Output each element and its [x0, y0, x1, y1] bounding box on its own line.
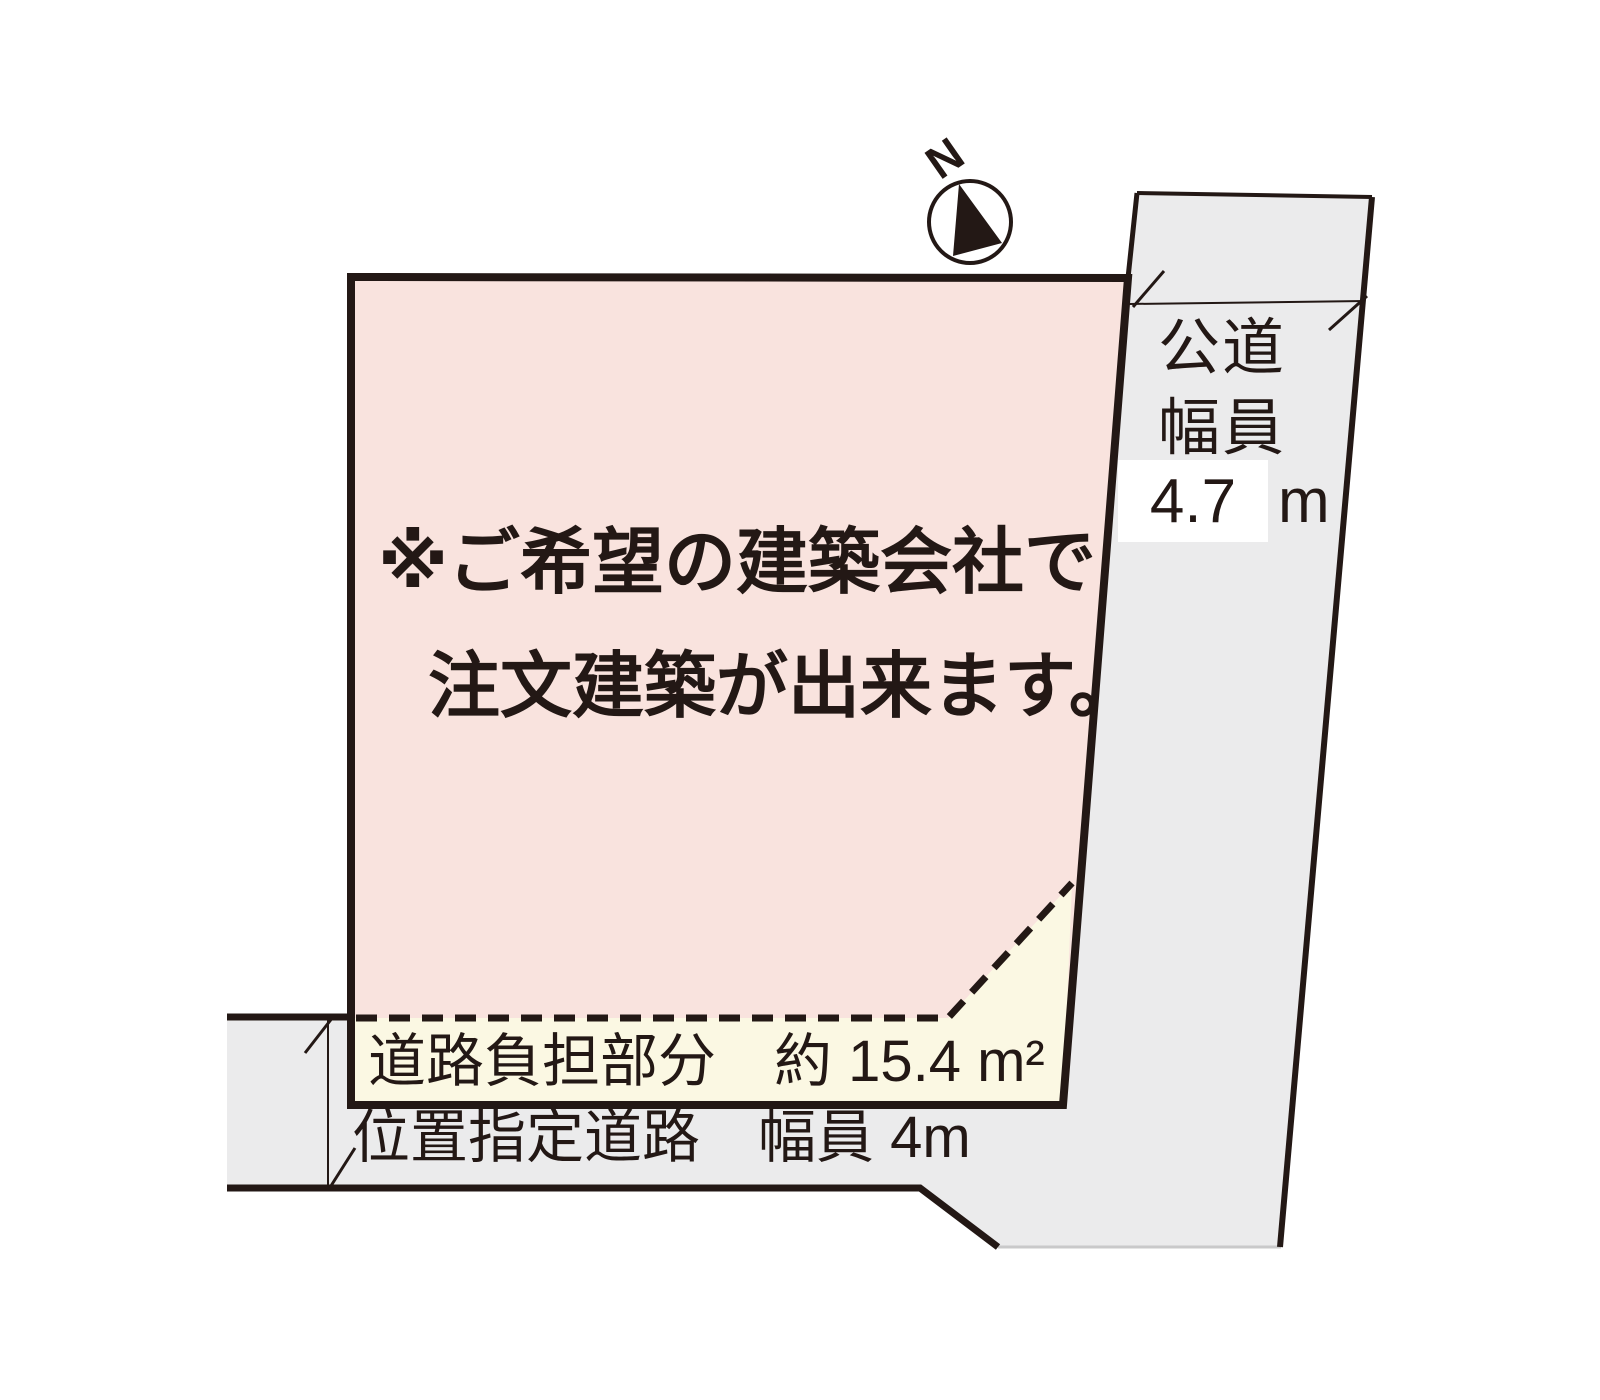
site-note-line1: ※ご希望の建築会社で [378, 526, 1096, 602]
site-note-line2: 注文建築が出来ます。 [428, 650, 1141, 726]
public-road-width-unit: m [1278, 466, 1330, 537]
north-compass-icon [929, 181, 1011, 263]
designated-road-label: 位置指定道路 幅員 4m [352, 1108, 971, 1169]
bottom-road-bottom-edge [227, 1188, 998, 1247]
public-road-width: 4.7 m [1118, 460, 1330, 542]
public-road-width-value-box: 4.7 [1118, 460, 1268, 542]
road-burden-label: 道路負担部分 約 15.4 m² [368, 1032, 1045, 1093]
land-plot-diagram: N ※ご希望の建築会社で 注文建築が出来ます。 道路負担部分 約 15.4 m²… [0, 0, 1600, 1400]
public-road-name-line1: 公道 [1158, 316, 1286, 381]
public-road-name-line2: 幅員 [1158, 396, 1286, 461]
